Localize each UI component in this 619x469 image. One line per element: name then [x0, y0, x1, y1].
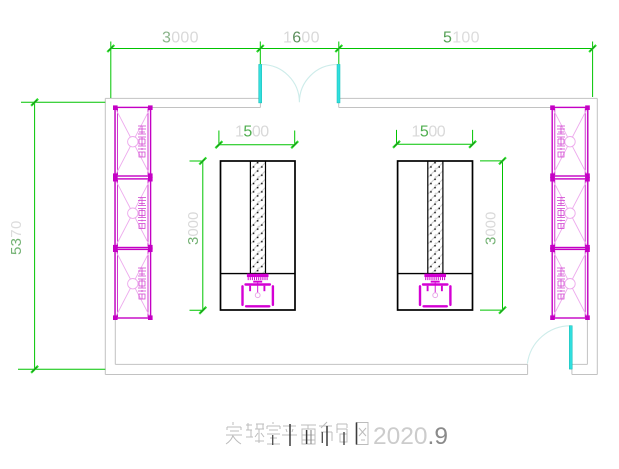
- svg-text:1500: 1500: [412, 124, 446, 141]
- svg-text:5370: 5370: [8, 220, 25, 255]
- svg-text:1600: 1600: [283, 30, 320, 47]
- svg-text:1500: 1500: [235, 124, 269, 141]
- svg-text:3000: 3000: [483, 212, 500, 245]
- svg-text:3000: 3000: [162, 30, 199, 47]
- svg-text:5100: 5100: [443, 30, 480, 47]
- svg-text:3000: 3000: [185, 212, 202, 245]
- svg-text:2020.9: 2020.9: [373, 423, 448, 450]
